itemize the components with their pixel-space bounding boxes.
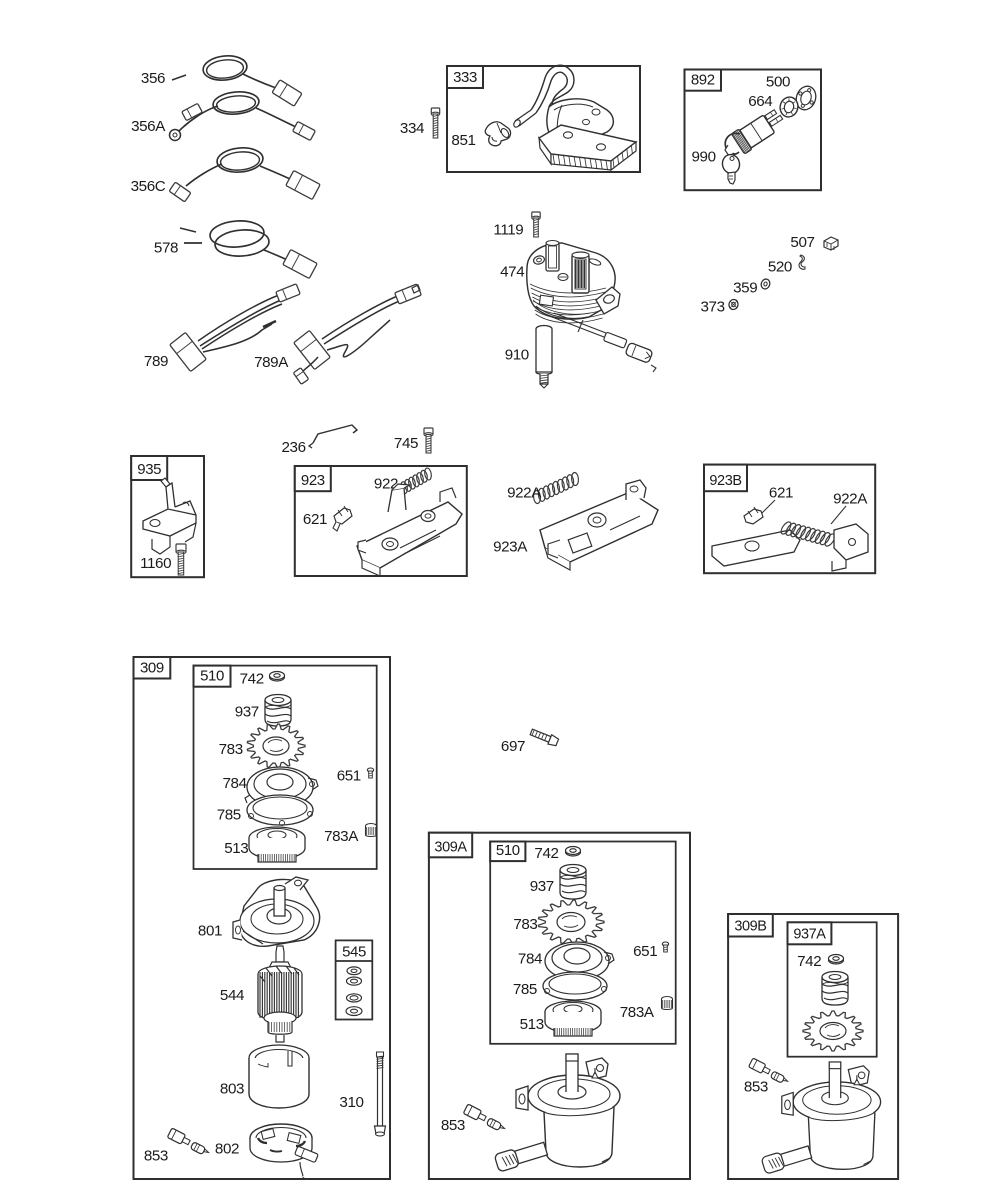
svg-text:742: 742 [240,671,264,688]
svg-text:520: 520 [768,258,792,275]
svg-text:651: 651 [337,768,361,785]
svg-text:1160: 1160 [140,555,171,572]
svg-text:373: 373 [701,298,725,315]
svg-text:309: 309 [140,660,164,677]
svg-text:621: 621 [303,511,327,528]
svg-text:621: 621 [769,484,793,501]
svg-text:990: 990 [692,148,716,165]
svg-text:333: 333 [453,69,477,86]
svg-text:785: 785 [513,981,537,998]
svg-text:513: 513 [224,840,248,857]
svg-text:545: 545 [342,944,366,961]
svg-text:742: 742 [797,953,821,970]
svg-text:1119: 1119 [493,222,523,239]
svg-text:510: 510 [496,842,520,859]
svg-text:742: 742 [534,845,558,862]
svg-text:783: 783 [219,741,243,758]
svg-text:783A: 783A [324,828,359,845]
svg-text:853: 853 [744,1079,768,1096]
svg-text:309B: 309B [734,919,766,935]
svg-text:922A: 922A [507,484,542,501]
svg-text:853: 853 [441,1117,465,1134]
svg-text:785: 785 [217,807,241,824]
svg-text:853: 853 [144,1148,168,1165]
svg-text:803: 803 [220,1081,244,1098]
svg-text:937: 937 [530,878,554,895]
svg-text:784: 784 [223,775,247,792]
svg-text:651: 651 [633,943,657,960]
svg-text:236: 236 [282,439,306,456]
svg-text:937: 937 [235,704,259,721]
svg-text:513: 513 [520,1016,544,1033]
svg-text:784: 784 [518,950,542,967]
svg-text:892: 892 [691,72,715,89]
svg-text:310: 310 [339,1094,363,1111]
svg-text:937A: 937A [793,926,826,942]
svg-text:923A: 923A [493,539,528,556]
svg-text:923B: 923B [709,473,741,489]
svg-text:935: 935 [137,461,161,478]
svg-text:356A: 356A [131,118,166,135]
svg-text:356C: 356C [131,178,166,195]
svg-text:474: 474 [500,264,524,281]
svg-text:923: 923 [301,472,325,489]
svg-text:544: 544 [220,987,244,1004]
svg-text:507: 507 [790,234,814,251]
svg-text:910: 910 [505,347,529,364]
svg-text:510: 510 [200,668,224,685]
svg-text:334: 334 [400,120,424,137]
svg-text:500: 500 [766,74,790,91]
svg-text:356: 356 [141,70,165,87]
svg-text:359: 359 [733,279,757,296]
svg-text:578: 578 [154,240,178,257]
svg-text:697: 697 [501,738,525,755]
svg-text:802: 802 [215,1141,239,1158]
svg-text:789: 789 [144,353,168,370]
svg-text:789A: 789A [254,354,289,371]
svg-text:922A: 922A [833,491,868,508]
svg-text:309A: 309A [434,839,467,855]
svg-text:664: 664 [748,93,772,110]
svg-text:783: 783 [513,916,537,933]
svg-text:851: 851 [451,132,475,149]
svg-text:745: 745 [394,435,418,452]
svg-text:801: 801 [198,923,222,940]
svg-text:783A: 783A [620,1004,655,1021]
